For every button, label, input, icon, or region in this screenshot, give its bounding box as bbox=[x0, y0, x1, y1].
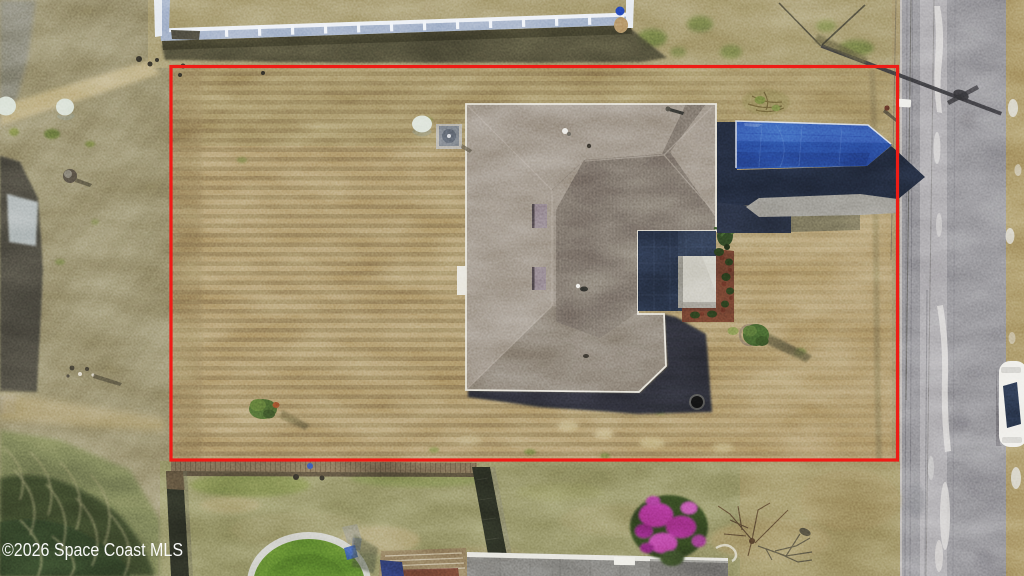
svg-text:©2026 Space Coast MLS: ©2026 Space Coast MLS bbox=[2, 539, 183, 560]
